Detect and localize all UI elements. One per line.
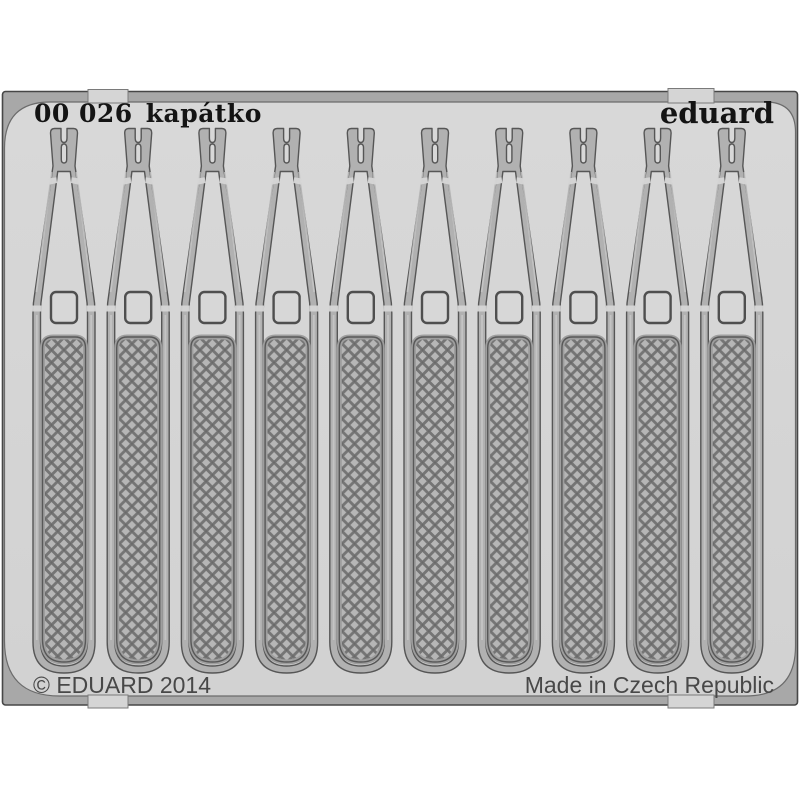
mesh-panel <box>117 337 160 662</box>
fold-line-mark <box>383 306 392 312</box>
fold-line-mark <box>552 306 561 312</box>
fold-line-mark <box>403 306 412 312</box>
fold-line-mark <box>606 306 615 312</box>
mesh-panel <box>562 337 605 662</box>
product-photo: 00 026kapátko eduard © EDUARD 2014 Made … <box>0 0 800 800</box>
mesh-panel <box>636 337 679 662</box>
origin-text: Made in Czech Republic <box>525 672 774 698</box>
etched-square-hole <box>348 292 374 323</box>
etched-square-hole <box>496 292 522 323</box>
fold-line-mark <box>754 306 763 312</box>
etched-square-hole <box>719 292 745 323</box>
fold-line-mark <box>700 306 709 312</box>
fold-line-mark <box>161 306 170 312</box>
fold-line-mark <box>255 306 264 312</box>
mesh-panel <box>43 337 86 662</box>
fold-line-mark <box>477 306 486 312</box>
brand-logo: eduard <box>660 96 774 130</box>
fold-line-mark <box>458 306 467 312</box>
fold-line-mark <box>87 306 96 312</box>
etched-square-hole <box>125 292 151 323</box>
fold-line-mark <box>106 306 115 312</box>
mesh-panel <box>710 337 753 662</box>
fold-line-mark <box>329 306 338 312</box>
header-title: 00 026kapátko <box>34 99 262 128</box>
catalog-number: 00 026 <box>34 99 133 128</box>
fold-line-mark <box>32 306 41 312</box>
fold-line-mark <box>532 306 541 312</box>
fold-line-mark <box>680 306 689 312</box>
product-name: kapátko <box>146 99 262 128</box>
mesh-panel <box>414 337 457 662</box>
copyright-text: © EDUARD 2014 <box>33 672 211 698</box>
mesh-panel <box>339 337 382 662</box>
fold-line-mark <box>181 306 190 312</box>
fold-line-mark <box>309 306 318 312</box>
mesh-panel <box>191 337 234 662</box>
etched-square-hole <box>274 292 300 323</box>
etched-square-hole <box>51 292 77 323</box>
etched-square-hole <box>645 292 671 323</box>
etched-square-hole <box>422 292 448 323</box>
etched-square-hole <box>570 292 596 323</box>
mesh-panel <box>265 337 308 662</box>
fold-line-mark <box>235 306 244 312</box>
etched-square-hole <box>199 292 225 323</box>
photo-etch-sheet-image: 00 026kapátko eduard © EDUARD 2014 Made … <box>0 0 800 800</box>
etch-fret: 00 026kapátko eduard © EDUARD 2014 Made … <box>3 89 798 709</box>
mesh-panel <box>488 337 531 662</box>
fold-line-mark <box>626 306 635 312</box>
